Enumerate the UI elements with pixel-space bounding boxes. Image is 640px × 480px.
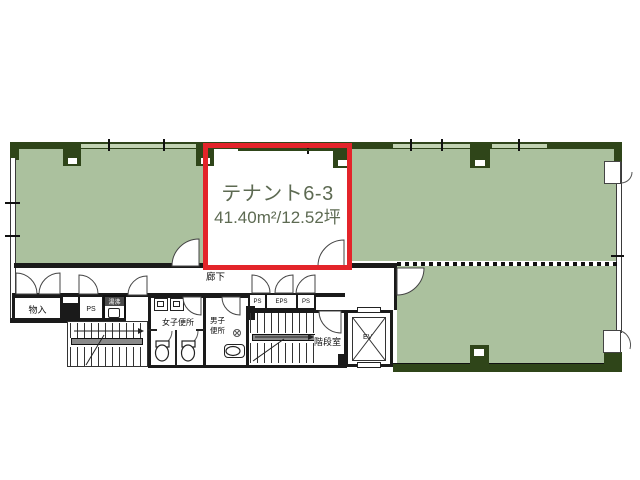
northeast-corner bbox=[614, 142, 622, 162]
storage-label: 物入 bbox=[28, 303, 46, 316]
south-wall bbox=[393, 363, 622, 372]
corridor-east-wall bbox=[394, 263, 397, 310]
eps-box: EPS bbox=[265, 293, 298, 310]
wall-block bbox=[338, 354, 347, 368]
elevator-label: EV bbox=[362, 334, 373, 341]
door-arc bbox=[621, 331, 631, 349]
stair-treads bbox=[70, 323, 145, 338]
door-arc bbox=[275, 275, 293, 293]
sink-basin bbox=[157, 301, 164, 307]
door-arc bbox=[16, 273, 37, 294]
stairwell-label: 階段室 bbox=[314, 335, 341, 348]
stair-landing bbox=[252, 334, 315, 341]
door-arc bbox=[252, 275, 270, 293]
tenant-area: 41.40m²/12.52坪 bbox=[200, 207, 355, 228]
womens-toilet-label: 女子便所 bbox=[150, 317, 206, 328]
elevator-door bbox=[357, 307, 381, 313]
stair-treads bbox=[250, 313, 316, 333]
mullion-tick bbox=[518, 139, 520, 151]
corridor-north-wall-right bbox=[350, 263, 397, 268]
mullion-tick bbox=[163, 139, 165, 151]
exterior-door-top bbox=[604, 161, 621, 184]
pipe-shaft-label: PS bbox=[86, 306, 95, 313]
sink-icon bbox=[108, 308, 120, 318]
window-band-1 bbox=[80, 142, 197, 149]
pipe-shaft-box: PS bbox=[296, 293, 316, 310]
right-lower-tenant-area bbox=[397, 266, 618, 366]
column-notch bbox=[474, 349, 484, 356]
mullion-tick bbox=[5, 235, 20, 237]
stall-wall-stub bbox=[196, 329, 205, 331]
left-tenant-area bbox=[16, 148, 203, 263]
stall-divider bbox=[175, 330, 177, 366]
window-band-3 bbox=[393, 142, 470, 149]
mullion-tick bbox=[611, 255, 624, 257]
highlighted-tenant-info: テナント6-3 41.40m²/12.52坪 bbox=[200, 182, 355, 228]
mullion-tick bbox=[108, 139, 110, 151]
door-arc bbox=[621, 172, 632, 183]
mullion-tick bbox=[441, 139, 443, 151]
hot-water-label: 湯沸 bbox=[105, 297, 124, 306]
corridor-north-wall-left bbox=[14, 263, 203, 268]
exterior-door-bottom bbox=[603, 330, 621, 353]
elevator-door bbox=[357, 362, 381, 368]
mens-toilet-label: 男子 便所 bbox=[210, 316, 225, 336]
door-arc bbox=[39, 273, 60, 294]
stair-landing bbox=[71, 338, 143, 345]
urinal-icon bbox=[224, 344, 245, 358]
floorplan: 物入 PS 湯沸 女子便所 男子 便所 PS EPS PS bbox=[0, 0, 640, 480]
stairs-left bbox=[67, 321, 148, 367]
stair-treads bbox=[70, 347, 145, 366]
corridor-label: 廊下 bbox=[206, 269, 225, 283]
column-notch bbox=[475, 160, 485, 166]
southeast-corner bbox=[604, 352, 622, 369]
stall-wall-stub bbox=[148, 329, 157, 331]
mullion-tick bbox=[410, 139, 412, 151]
door-arc bbox=[79, 275, 98, 294]
mullion-tick bbox=[5, 202, 20, 204]
door-arc bbox=[296, 275, 315, 293]
dotted-partition-line bbox=[397, 262, 618, 266]
sink-basin bbox=[173, 301, 180, 307]
stair-treads bbox=[250, 343, 316, 363]
tenant-name: テナント6-3 bbox=[200, 182, 355, 207]
column-notch bbox=[68, 158, 77, 164]
